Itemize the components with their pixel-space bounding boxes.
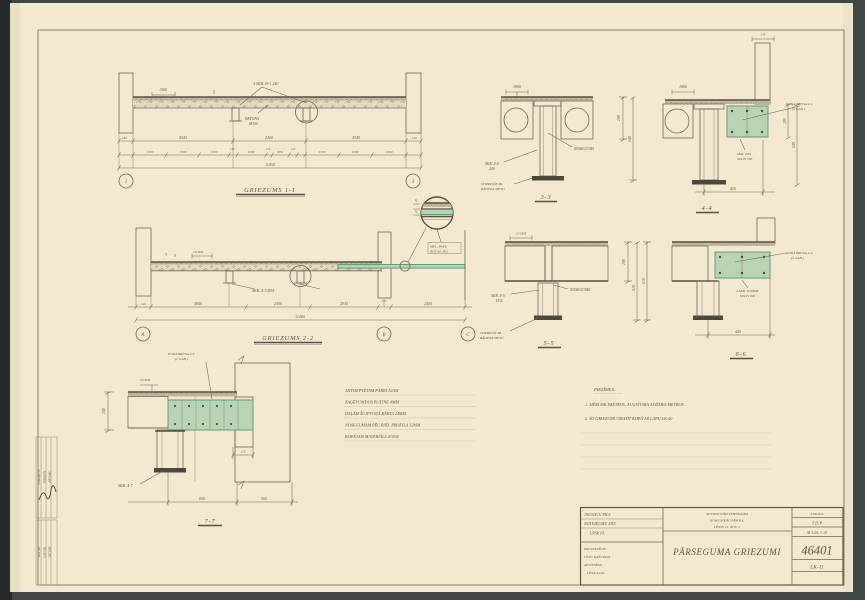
object-number: 46401 [801, 544, 832, 558]
fastener-label: 4 SKR. Ø16MM [736, 289, 760, 293]
dim-label: 1000 [159, 87, 167, 92]
dim-label: 1500 [248, 150, 255, 154]
fastener-label: SKR. 4-5 [491, 294, 505, 298]
section-title: 3-3 [539, 194, 551, 201]
dim-label: 140 [411, 136, 417, 140]
dim-total-label: 11480 [295, 314, 305, 319]
section-title: 7-7 [204, 518, 215, 525]
grid-bubble-label: 1 [125, 180, 128, 185]
sheet-title: PĀRSEGUMA GRIEZUMI [672, 547, 781, 557]
timber-beam-plate [168, 400, 253, 430]
dim-label: 1500 [386, 150, 393, 154]
dim-label: 4545 [179, 135, 187, 140]
dim-label: 2400 [265, 135, 273, 140]
note-label: RĀDEŅA METU [480, 186, 505, 191]
dim-label: 10 MM [193, 250, 204, 254]
timber-bearing-plate [715, 252, 770, 278]
dim-label: 280 [782, 118, 787, 124]
drawing-sheet: SASKAŅOTS PARAKSTS DATUMS IZM. NR. LAPA … [0, 0, 865, 600]
dim-label: 65 [173, 254, 177, 258]
dim-label: 380 [382, 299, 387, 303]
dim-label: 980 [261, 496, 267, 501]
dim-label: 280 [616, 115, 621, 121]
author-line: APVIENĪBA: [583, 562, 603, 567]
paper [10, 3, 853, 592]
beam-bottom-plate [534, 316, 562, 321]
detail-note: BITUM. M-2 [430, 249, 449, 253]
fastener-label: SKR. 4-3 Ø34 [252, 288, 274, 293]
dim-label: 1500 [147, 150, 154, 154]
dim-label: 240 [101, 408, 106, 414]
dim-label: 20 [164, 253, 168, 257]
dim-label: 4545 [352, 135, 360, 140]
fastener-label: SKR. Ø16 [737, 152, 751, 156]
material-label: BETONS [245, 117, 259, 121]
fastener-label: 4 SKR. Ø-1 240 [253, 81, 278, 86]
margin-label: DATUMS [49, 546, 52, 559]
margin-label: SASKAŅOTS [38, 469, 41, 485]
dim-total-label: 11450 [265, 162, 275, 167]
material-label: KOKA BRUSA 2-2 [785, 251, 813, 255]
author-line: PROJEKTĒJIS: [583, 546, 607, 551]
detail-note: MEL. PAPE [429, 245, 448, 249]
margin-label: DATUMS [49, 471, 52, 484]
dim-label: 1500 [211, 150, 218, 154]
paper-fold-shade [10, 3, 20, 592]
sheet-number: LK-11 [809, 565, 824, 571]
dim-label: 120 [291, 147, 296, 151]
dim-label: 1500 [352, 150, 359, 154]
client-line: JAUNAVU PILS [584, 512, 610, 517]
org-line: KOMUNIKĀCIJĀM P.S. [709, 518, 745, 523]
spec-note-line: DAĻĀM ŠUJPVOŅĀ KĀRTA 24MM [344, 411, 407, 416]
spec-note-line: NOSEGUMAM PĒC RĀD. PROFILA 32MM [344, 423, 421, 428]
dim-label: 140 [140, 302, 146, 306]
material-label: NOSEGUMS [573, 147, 594, 151]
dim-label: 610 [631, 285, 636, 291]
dim-label: 640 [627, 136, 632, 142]
dim-label: 1500 [180, 150, 187, 154]
beam-bottom-plate [154, 468, 186, 473]
section-title: 6-6 [735, 351, 746, 358]
spec-note-line: ANTISEPTĒTAM PĀRKLĀJAM [344, 388, 399, 393]
dim-label: 20 MM [140, 378, 151, 382]
beam-bottom-plate [532, 176, 564, 181]
org-line: LĒNIN 21. NOV. 2 [713, 524, 740, 529]
blueprint-svg: SASKAŅOTS PARAKSTS DATUMS IZM. NR. LAPA … [0, 0, 865, 600]
dim-label: 640 [791, 142, 796, 148]
material-label: (2 GAB.) [175, 357, 188, 361]
material-label: (2 GAB.) [792, 107, 805, 111]
dim-label: 120 [240, 450, 246, 454]
section-title: 5-5 [543, 340, 554, 347]
section-title: GRIEZUMS 2-2 [262, 335, 314, 342]
author-line: LĒNA ALVA [586, 570, 605, 575]
dim-label: 10 MM [516, 232, 527, 236]
dim-label: 140 [230, 147, 235, 151]
margin-label: PARAKSTS [44, 470, 47, 484]
fastener-label: SKR. 4-4 [485, 162, 499, 166]
spec-note-line: ZAĢĒVUMDOS PLĀTNE 4MM [345, 400, 399, 405]
org-line: APVIENOTĀM TEHNISKĀM [705, 511, 749, 516]
fastener-label: SOLIS 700 [737, 157, 753, 161]
fastener-label: Ø34 [495, 299, 503, 303]
dim-label: 50 [212, 90, 216, 94]
dim-label: 610 [641, 278, 646, 284]
fastener-label: SOLIS 800 [740, 294, 756, 298]
grid-bubble-label: B [382, 333, 385, 338]
dim-label: 140 [761, 33, 766, 37]
dim-label: 2400 [274, 301, 282, 306]
section-title: GRIEZUMS 1-1 [244, 187, 296, 194]
detail-blowup-layers [421, 203, 453, 220]
section-title: 4-4 [701, 205, 712, 212]
spec-note-line: KOPĒJAIS MATERIĀLS 4/30M [344, 434, 399, 439]
material-label: (2 GAB.) [791, 256, 804, 260]
dim-label: 120 [266, 147, 271, 151]
material-label: NOSEGUMS [569, 288, 590, 292]
dim-label: 800 [199, 496, 205, 501]
beam-bottom-plate [692, 180, 726, 185]
stage-label: STADIJA [811, 512, 825, 516]
dim-label: 2400 [424, 301, 432, 306]
dim-label: 3840 [194, 301, 202, 306]
dim-label: 450 [730, 186, 736, 191]
material-label: KOKA BRUSA 4-5 [167, 352, 195, 356]
dim-label: 280 [621, 259, 626, 265]
note-label: STIPRINĀT PA [480, 330, 502, 335]
author-line: LĒNU RAŽOTAVA [583, 554, 611, 559]
margin-label: IZM. NR. [38, 546, 41, 558]
client-line: NOTEIKUMU MIN. [583, 521, 617, 526]
slab-body [133, 101, 406, 109]
fastener-label: SKR. 4-7 [118, 483, 133, 488]
dim-label: 440 [735, 329, 741, 334]
note-label: STIPRINĀT PA [481, 181, 503, 186]
dim-label: 140 [121, 136, 127, 140]
beam-strip-green [338, 265, 465, 269]
dim-label: 1000 [679, 84, 687, 89]
note-label: RĀDEŅA METU [479, 335, 504, 340]
dim-label: 1000 [513, 84, 521, 89]
beam-bottom-plate [693, 316, 723, 321]
remarks-header: PIEZĪMES: [593, 387, 616, 392]
dim-label: 800 [277, 150, 283, 154]
material-label: M100 [248, 122, 258, 126]
margin-label: LAPA NR. [44, 546, 47, 559]
stage-value: T.D.P [812, 521, 823, 526]
dim-label: 1500 [319, 150, 326, 154]
client-line: LPSR PL [589, 531, 606, 536]
paper-fold-shade-right [843, 3, 853, 592]
fastener-label: 240 [489, 167, 495, 171]
dim-label: 2840 [340, 301, 348, 306]
remark-item: 2. ŠO GRIEZUMU SKATĪT KOPĀ AR LAPU LK-40 [585, 416, 673, 421]
